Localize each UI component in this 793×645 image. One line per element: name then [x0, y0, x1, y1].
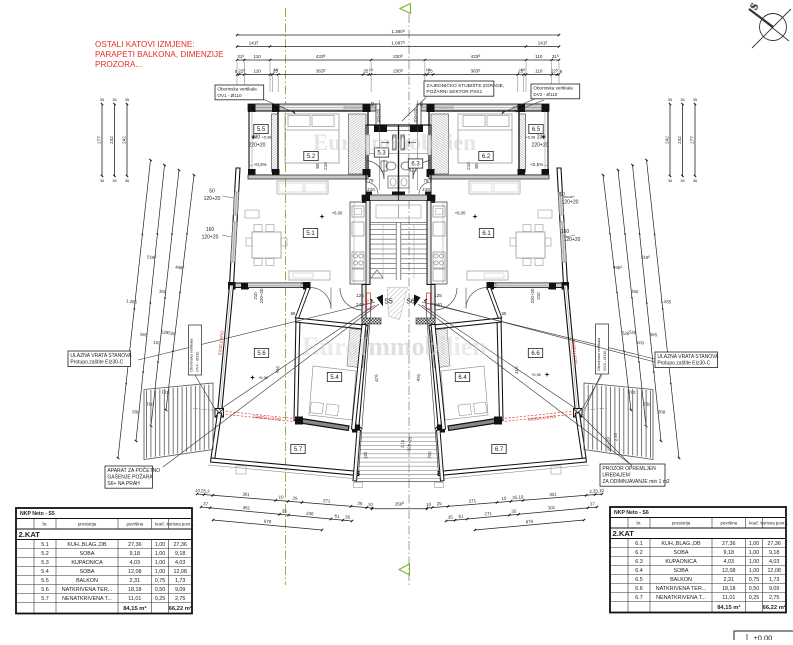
svg-text:prostorija: prostorija — [78, 522, 97, 527]
svg-text:110: 110 — [254, 54, 262, 59]
svg-text:200: 200 — [427, 450, 433, 458]
svg-text:5.7: 5.7 — [294, 447, 303, 453]
svg-text:120+20: 120+20 — [202, 235, 219, 241]
svg-text:5.2: 5.2 — [41, 551, 49, 557]
svg-text:6.4: 6.4 — [635, 568, 643, 574]
svg-text:301: 301 — [242, 492, 250, 498]
svg-text:5.6: 5.6 — [257, 351, 266, 357]
svg-text:+5,98: +5,98 — [262, 136, 272, 140]
svg-text:528: 528 — [168, 330, 176, 336]
svg-text:160: 160 — [159, 289, 167, 295]
svg-text:200: 200 — [658, 409, 666, 415]
svg-text:65: 65 — [291, 311, 296, 316]
svg-text:200: 200 — [363, 451, 369, 459]
svg-text:0,75: 0,75 — [749, 577, 760, 583]
svg-text:277: 277 — [97, 136, 102, 144]
svg-text:12,08: 12,08 — [128, 569, 142, 575]
svg-text:UREĐAJEM: UREĐAJEM — [602, 473, 630, 479]
svg-text:271: 271 — [469, 498, 477, 504]
svg-text:9,18: 9,18 — [769, 550, 780, 556]
svg-text:korisna povr...: korisna povr... — [167, 522, 194, 527]
svg-text:KUH.,BLAG.,DB: KUH.,BLAG.,DB — [661, 541, 701, 547]
svg-text:210: 210 — [422, 187, 430, 192]
svg-text:220+20: 220+20 — [249, 143, 266, 149]
svg-text:35: 35 — [112, 98, 116, 102]
svg-text:242: 242 — [109, 136, 114, 144]
svg-text:27,36: 27,36 — [722, 541, 736, 547]
svg-text:242: 242 — [677, 136, 682, 144]
svg-text:6.7: 6.7 — [495, 447, 504, 453]
svg-text:1.0975: 1.0975 — [391, 40, 405, 45]
svg-text:2.KAT: 2.KAT — [613, 529, 635, 538]
svg-text:12,08: 12,08 — [173, 569, 187, 575]
svg-text:242: 242 — [665, 136, 670, 144]
svg-text:1,00: 1,00 — [155, 542, 166, 548]
svg-text:36: 36 — [112, 179, 116, 183]
svg-text:361: 361 — [243, 505, 251, 511]
svg-text:1,00: 1,00 — [155, 560, 166, 566]
svg-text:BALKON: BALKON — [670, 577, 692, 583]
svg-text:NENATKRIVENA T...: NENATKRIVENA T... — [656, 595, 706, 601]
svg-text:1,73: 1,73 — [769, 577, 780, 583]
svg-text:SOBA: SOBA — [80, 569, 95, 575]
svg-text:679: 679 — [525, 519, 533, 525]
svg-text:240: 240 — [356, 302, 364, 307]
svg-text:35: 35 — [693, 98, 697, 102]
svg-text:1,00: 1,00 — [155, 551, 166, 557]
svg-text:84,15 m²: 84,15 m² — [717, 604, 740, 611]
svg-text:PROZORA...: PROZORA... — [95, 60, 142, 69]
svg-text:36: 36 — [100, 179, 104, 183]
svg-text:Oborinska vertikala: Oborinska vertikala — [533, 86, 573, 91]
svg-text:301: 301 — [549, 492, 557, 498]
svg-text:2,31: 2,31 — [130, 578, 141, 584]
svg-text:200: 200 — [132, 409, 140, 415]
svg-text:GAŠENJE POŽARA: GAŠENJE POŽARA — [107, 473, 153, 481]
svg-text:210: 210 — [466, 162, 471, 170]
svg-text:36: 36 — [125, 179, 129, 183]
svg-text:220+20: 220+20 — [259, 288, 264, 303]
svg-text:±0.00: ±0.00 — [754, 634, 773, 641]
svg-text:103: 103 — [636, 340, 644, 346]
svg-text:2.KAT: 2.KAT — [19, 530, 41, 539]
svg-text:Oborinska vertikala: Oborinska vertikala — [217, 87, 257, 92]
svg-text:1,73: 1,73 — [175, 578, 186, 584]
svg-text:br.: br. — [43, 522, 48, 527]
svg-text:6.4: 6.4 — [458, 375, 467, 381]
svg-text:S6+ NA PRAH: S6+ NA PRAH — [107, 481, 140, 487]
svg-text:679: 679 — [264, 519, 272, 525]
svg-text:ZAJEDNIČKO STUBIŠTE ZGRADE,: ZAJEDNIČKO STUBIŠTE ZGRADE, — [426, 82, 504, 89]
svg-text:66,22 m²: 66,22 m² — [763, 604, 786, 611]
svg-text:prostorija: prostorija — [672, 521, 691, 526]
svg-text:1,00: 1,00 — [749, 568, 760, 574]
svg-text:EuroImmobilien: EuroImmobilien — [313, 130, 476, 155]
svg-text:10: 10 — [521, 67, 526, 72]
svg-text:50: 50 — [209, 189, 215, 195]
svg-text:površina: površina — [126, 522, 143, 527]
svg-text:0,75: 0,75 — [155, 578, 166, 584]
svg-text:50: 50 — [370, 101, 375, 106]
svg-text:27,36: 27,36 — [128, 542, 142, 548]
svg-text:103: 103 — [153, 340, 161, 346]
svg-text:1,00: 1,00 — [749, 541, 760, 547]
svg-text:PARAPETI BALKONA, DIMENZIJE: PARAPETI BALKONA, DIMENZIJE — [95, 50, 224, 59]
svg-text:BALKON: BALKON — [76, 578, 98, 584]
svg-text:5.1: 5.1 — [41, 542, 49, 548]
svg-text:Oborinska vertikala: Oborinska vertikala — [189, 338, 194, 372]
svg-text:Protupo.zaštite EIz30-C: Protupo.zaštite EIz30-C — [70, 360, 123, 366]
svg-text:PROZOR OPREMLJEN: PROZOR OPREMLJEN — [602, 466, 656, 472]
svg-text:1,00: 1,00 — [155, 569, 166, 575]
svg-text:80: 80 — [315, 163, 320, 169]
svg-text:25,10: 25,10 — [512, 494, 524, 500]
svg-text:+5,98: +5,98 — [531, 373, 541, 377]
svg-text:120+20: 120+20 — [204, 196, 221, 202]
svg-text:2,10: 2,10 — [400, 439, 406, 448]
svg-text:10: 10 — [426, 67, 431, 72]
svg-text:210: 210 — [367, 187, 375, 192]
svg-text:9,18: 9,18 — [175, 551, 186, 557]
svg-text:+5,98: +5,98 — [526, 136, 536, 140]
svg-text:NKP Neto - S6: NKP Neto - S6 — [614, 510, 649, 516]
svg-text:160: 160 — [206, 227, 215, 233]
svg-text:DV2 - Ø110: DV2 - Ø110 — [533, 92, 557, 97]
svg-text:OV4 - Ø110: OV4 - Ø110 — [195, 351, 200, 372]
svg-text:35: 35 — [100, 98, 104, 102]
svg-text:ULAZNA VRATA STANOVA: ULAZNA VRATA STANOVA — [70, 353, 132, 359]
svg-text:4,03: 4,03 — [724, 559, 735, 565]
svg-text:4,03: 4,03 — [769, 559, 780, 565]
svg-text:160: 160 — [561, 229, 570, 235]
svg-text:6.6: 6.6 — [531, 351, 540, 357]
svg-text:180: 180 — [146, 401, 154, 407]
svg-text:36: 36 — [668, 179, 672, 183]
svg-text:110: 110 — [254, 69, 262, 74]
svg-text:210: 210 — [323, 162, 328, 170]
svg-text:<0,5%→: <0,5%→ — [530, 162, 548, 167]
svg-text:220+20: 220+20 — [532, 143, 549, 149]
svg-text:EI2: EI2 — [366, 299, 370, 304]
svg-text:OV1 - Ø110: OV1 - Ø110 — [217, 93, 242, 98]
svg-text:5.4: 5.4 — [330, 375, 339, 381]
svg-text:KUPAONICA: KUPAONICA — [665, 559, 697, 565]
svg-text:100+20: 100+20 — [376, 108, 381, 123]
svg-text:9,09: 9,09 — [769, 586, 780, 592]
svg-text:210: 210 — [253, 292, 258, 300]
svg-text:476: 476 — [416, 373, 422, 381]
svg-text:11,01: 11,01 — [128, 596, 141, 602]
svg-text:271: 271 — [323, 498, 331, 504]
svg-text:2,75: 2,75 — [175, 596, 186, 602]
svg-text:+6.00: +6.00 — [455, 211, 466, 216]
svg-text:5.3: 5.3 — [41, 560, 49, 566]
svg-text:5.4: 5.4 — [41, 569, 49, 575]
svg-text:18,18: 18,18 — [128, 587, 142, 593]
svg-text:6.5: 6.5 — [532, 127, 541, 133]
svg-text:0,25: 0,25 — [155, 596, 166, 602]
svg-text:76: 76 — [423, 178, 429, 183]
svg-text:110: 110 — [535, 54, 543, 59]
svg-text:4,03: 4,03 — [130, 560, 141, 566]
svg-text:35: 35 — [680, 98, 684, 102]
svg-text:br.: br. — [637, 521, 642, 526]
svg-text:18,18: 18,18 — [722, 586, 736, 592]
svg-text:120+20: 120+20 — [562, 200, 579, 206]
svg-text:301: 301 — [548, 505, 556, 511]
svg-text:271: 271 — [484, 511, 492, 517]
svg-text:12,08: 12,08 — [722, 568, 736, 574]
svg-text:210: 210 — [536, 292, 541, 300]
svg-text:ULAZNA VRATA STANOVA: ULAZNA VRATA STANOVA — [657, 354, 719, 360]
svg-text:SOBA: SOBA — [674, 568, 689, 574]
svg-text:EuroImmobilien: EuroImmobilien — [302, 332, 487, 361]
svg-text:APARAT ZA POČETNO: APARAT ZA POČETNO — [107, 467, 160, 474]
svg-text:0,50: 0,50 — [155, 587, 166, 593]
svg-text:←<0,5%: ←<0,5% — [249, 162, 267, 167]
svg-text:125: 125 — [434, 293, 442, 298]
svg-text:SOBA: SOBA — [674, 550, 689, 556]
svg-text:koef.: koef. — [749, 521, 759, 526]
svg-text:OV3 - Ø110: OV3 - Ø110 — [602, 350, 607, 371]
svg-text:50: 50 — [559, 192, 565, 198]
svg-text:36: 36 — [680, 179, 684, 183]
svg-text:125: 125 — [356, 293, 364, 298]
svg-text:0,50: 0,50 — [749, 586, 760, 592]
svg-text:9,09: 9,09 — [175, 587, 186, 593]
svg-text:220+20: 220+20 — [530, 288, 535, 303]
svg-text:5.1: 5.1 — [306, 231, 315, 237]
svg-text:12,08: 12,08 — [767, 568, 781, 574]
svg-text:NATKRIVENA TER...: NATKRIVENA TER... — [656, 586, 706, 592]
svg-text:korisna povr...: korisna povr... — [761, 521, 788, 526]
svg-text:565: 565 — [140, 332, 148, 338]
svg-text:KUH.,BLAG.,DB: KUH.,BLAG.,DB — [67, 542, 107, 548]
svg-text:65: 65 — [502, 311, 507, 316]
svg-text:S6: S6 — [406, 299, 415, 306]
svg-text:277: 277 — [690, 136, 695, 144]
svg-text:+6.00: +6.00 — [332, 211, 343, 216]
svg-text:9,18: 9,18 — [724, 550, 735, 556]
svg-text:5.6: 5.6 — [41, 587, 49, 593]
svg-text:6.3: 6.3 — [635, 559, 643, 565]
svg-text:S5: S5 — [384, 299, 393, 306]
svg-text:1,00: 1,00 — [749, 550, 760, 556]
svg-text:110: 110 — [535, 69, 543, 74]
svg-text:NATKRIVENA TER...: NATKRIVENA TER... — [62, 587, 112, 593]
svg-text:565: 565 — [650, 332, 658, 338]
svg-text:10: 10 — [274, 67, 279, 72]
svg-text:1,00: 1,00 — [749, 559, 760, 565]
svg-text:ZA ODIMNJAVANJE min 1 m2: ZA ODIMNJAVANJE min 1 m2 — [602, 479, 670, 485]
svg-text:5.5: 5.5 — [41, 578, 49, 584]
svg-text:+5,98: +5,98 — [258, 376, 268, 380]
svg-text:242: 242 — [122, 136, 127, 144]
svg-text:0,25: 0,25 — [749, 595, 760, 601]
svg-text:27,36: 27,36 — [173, 542, 187, 548]
svg-text:35: 35 — [125, 98, 129, 102]
svg-text:100+20: 100+20 — [413, 108, 418, 123]
svg-text:SOBA: SOBA — [80, 551, 95, 557]
svg-text:9,18: 9,18 — [130, 551, 141, 557]
svg-text:84,15 m²: 84,15 m² — [123, 605, 146, 612]
svg-text:5.5: 5.5 — [257, 127, 266, 133]
svg-text:2,10: 2,10 — [613, 432, 619, 441]
svg-text:66,22 m²: 66,22 m² — [169, 605, 192, 612]
svg-text:Protupo.zaštite EIz30-C: Protupo.zaštite EIz30-C — [657, 361, 710, 367]
svg-text:35: 35 — [668, 98, 672, 102]
svg-text:160: 160 — [631, 289, 639, 295]
svg-text:6.6: 6.6 — [635, 586, 643, 592]
svg-text:2,75: 2,75 — [769, 595, 780, 601]
svg-text:Oborinska vertikala: Oborinska vertikala — [596, 337, 601, 371]
svg-text:476: 476 — [374, 374, 380, 382]
svg-text:76: 76 — [368, 178, 374, 183]
svg-text:230: 230 — [306, 511, 314, 517]
svg-text:6.2: 6.2 — [482, 154, 491, 160]
svg-text:6.3: 6.3 — [411, 162, 420, 168]
svg-text:36: 36 — [693, 179, 697, 183]
svg-text:416: 416 — [514, 366, 520, 374]
svg-text:80: 80 — [474, 163, 479, 169]
svg-text:6.2: 6.2 — [635, 550, 643, 556]
svg-text:6.7: 6.7 — [635, 595, 643, 601]
svg-text:181: 181 — [161, 389, 169, 395]
svg-text:6.5: 6.5 — [635, 577, 643, 583]
svg-text:OSTALI KATOVI IZMJENE:: OSTALI KATOVI IZMJENE: — [95, 40, 195, 49]
svg-text:5.7: 5.7 — [41, 596, 49, 602]
svg-text:416: 416 — [275, 365, 281, 373]
svg-text:528: 528 — [621, 330, 629, 336]
svg-text:10: 10 — [369, 67, 374, 72]
svg-text:NKP Neto - S5: NKP Neto - S5 — [20, 511, 55, 517]
svg-text:2,31: 2,31 — [724, 577, 735, 583]
svg-text:27,36: 27,36 — [767, 541, 781, 547]
svg-text:koef.: koef. — [155, 522, 165, 527]
svg-text:4,03: 4,03 — [175, 560, 186, 566]
svg-text:528: 528 — [629, 329, 637, 335]
svg-text:1.3805: 1.3805 — [391, 29, 405, 34]
svg-text:120+20: 120+20 — [564, 237, 581, 243]
svg-text:5.2: 5.2 — [307, 154, 316, 160]
svg-text:površina: površina — [720, 521, 737, 526]
svg-text:6.1: 6.1 — [635, 541, 643, 547]
svg-text:KUPAONICA: KUPAONICA — [71, 560, 103, 566]
svg-text:6.1: 6.1 — [482, 231, 491, 237]
svg-text:11,01: 11,01 — [722, 595, 735, 601]
svg-text:NENATKRIVENA T...: NENATKRIVENA T... — [62, 596, 112, 602]
